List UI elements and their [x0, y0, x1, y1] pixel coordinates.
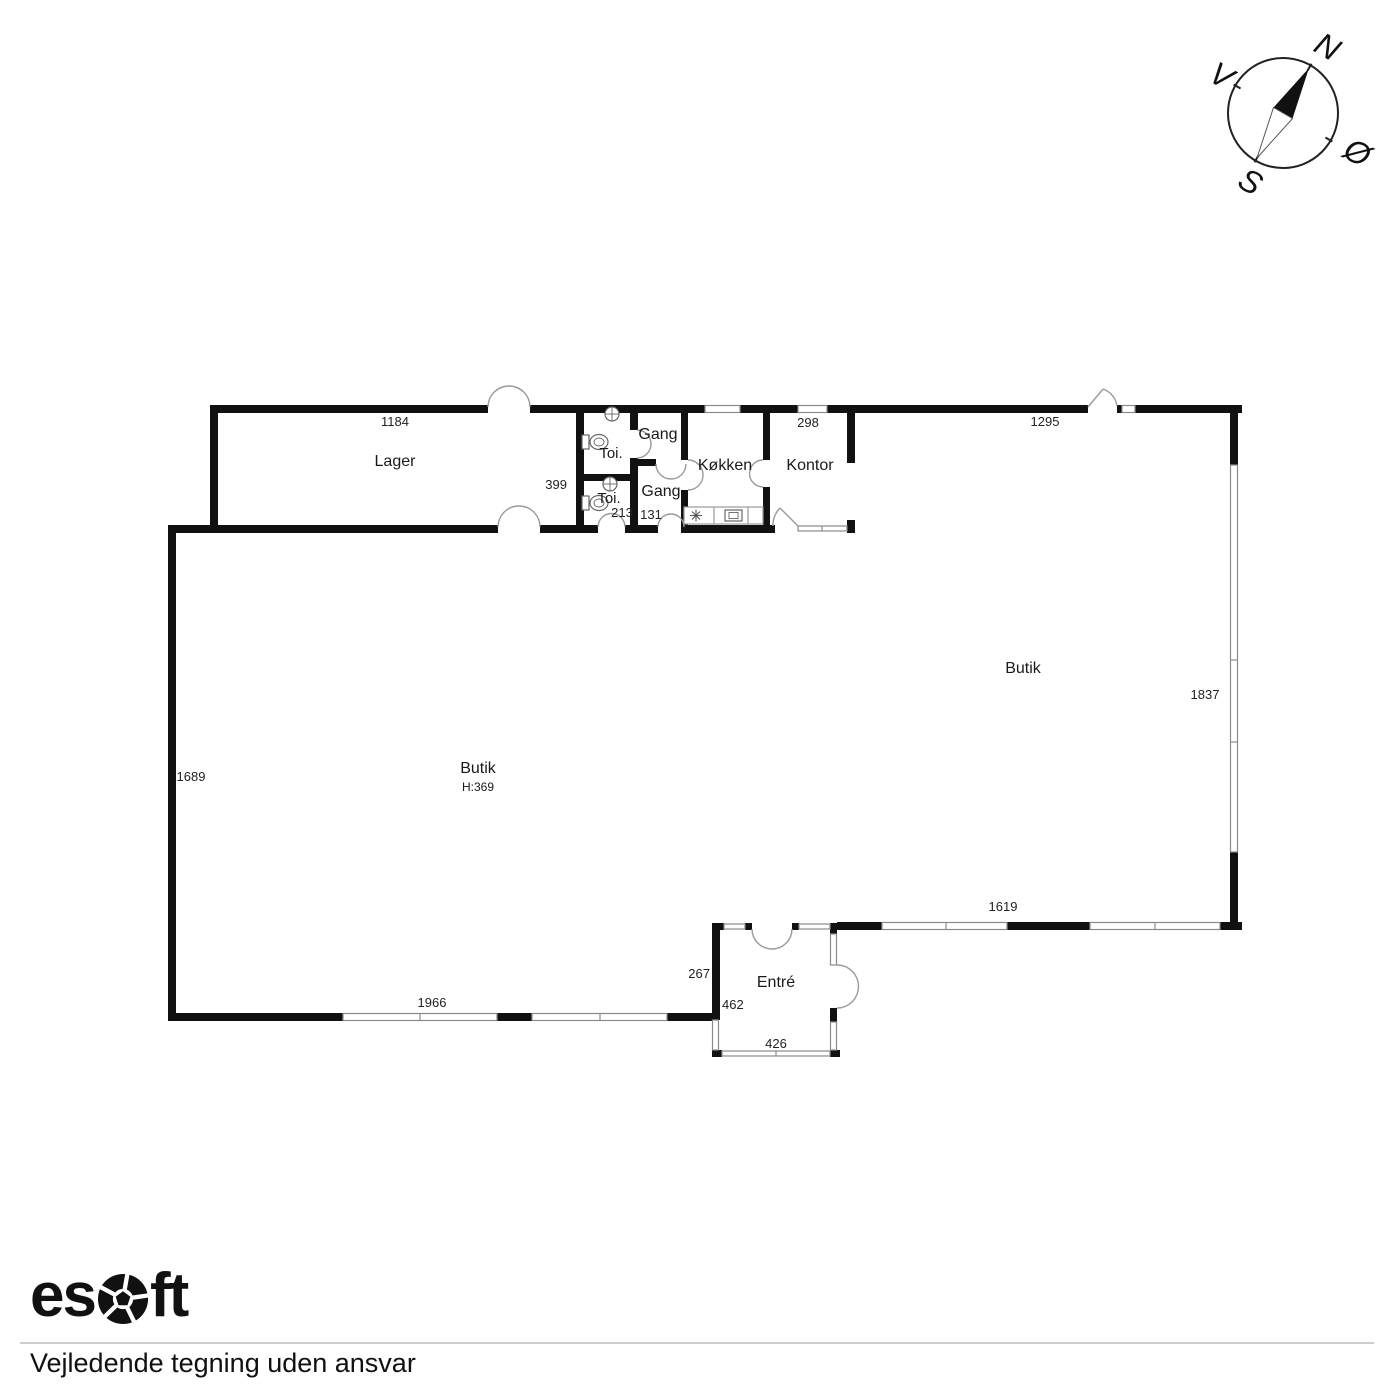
walls [168, 405, 1242, 1057]
door-arc [509, 386, 530, 407]
dim-butik-top: 1295 [1031, 414, 1060, 429]
room-label-entre: Entré [757, 974, 795, 991]
room-label-gang-upper: Gang [638, 426, 677, 443]
door-leaf [1088, 389, 1103, 407]
dim-entre-left-upper: 267 [688, 966, 710, 981]
aperture-icon [97, 1273, 149, 1325]
door-arc [750, 474, 764, 488]
room-label-toi-upper: Toi. [599, 445, 622, 462]
windows [343, 406, 1238, 1057]
window [724, 924, 745, 929]
dim-butik-bottom: 1966 [418, 995, 447, 1010]
compass-label-west: V [1203, 55, 1242, 98]
door-arc [637, 444, 651, 458]
dim-lager-side: 399 [545, 477, 567, 492]
esoft-logo: es ft [30, 1262, 1374, 1330]
dim-entre-bottom: 426 [765, 1036, 787, 1051]
door-arc [671, 464, 686, 479]
door-arc [598, 514, 612, 528]
compass-label-north: N [1308, 25, 1347, 68]
compass-rose: N Ø S V [1203, 25, 1379, 202]
door-arc [688, 475, 703, 490]
compass-label-east: Ø [1337, 130, 1379, 175]
room-label-kontor: Kontor [786, 457, 834, 474]
door-arc [519, 506, 540, 527]
door-arc [773, 508, 780, 526]
dim-entre-left-lower: 462 [722, 997, 744, 1012]
sink-icon [603, 477, 617, 491]
dim-butik-right-side: 1837 [1191, 687, 1220, 702]
door-arc [488, 386, 509, 407]
window [705, 406, 740, 413]
window [799, 924, 830, 929]
dim-toi: 213 [611, 505, 633, 520]
room-label-gang-lower: Gang [641, 483, 680, 500]
dim-butik-bottom-right: 1619 [989, 899, 1018, 914]
window [1231, 465, 1238, 852]
room-label-butik-main: Butik [460, 760, 497, 777]
room-label-lager: Lager [375, 453, 417, 470]
door-arc [1103, 389, 1117, 406]
door-arc [772, 929, 792, 949]
dim-kontor-top: 298 [797, 415, 819, 430]
footer-divider [20, 1342, 1374, 1344]
door-arc [656, 464, 671, 479]
disclaimer-text: Vejledende tegning uden ansvar [30, 1348, 416, 1379]
kitchen-sink-icon [725, 510, 742, 521]
window [1122, 406, 1135, 413]
room-height-label: H:369 [462, 780, 494, 794]
window [831, 934, 837, 965]
logo-text-left: es [30, 1265, 95, 1327]
window [831, 1022, 837, 1050]
room-label-kokken: Køkken [698, 457, 752, 474]
door-leaf [780, 508, 798, 526]
compass-label-south: S [1232, 161, 1268, 203]
sink-icon [605, 407, 619, 421]
door-arc [837, 965, 859, 987]
door-arc [752, 929, 772, 949]
window [882, 923, 1007, 930]
floorplan-drawing: Lager Toi. Toi. Gang Gang Køkken Kontor … [0, 0, 1400, 1400]
compass-needle-south [1257, 108, 1293, 159]
dim-butik-left-side: 1689 [177, 769, 206, 784]
footer: es ft Vejledende tegning uden ansvar [30, 1262, 1374, 1330]
window [798, 406, 827, 413]
floorplan-page: Lager Toi. Toi. Gang Gang Køkken Kontor … [0, 0, 1400, 1400]
door-arc [498, 506, 519, 527]
dim-gang: 131 [640, 507, 662, 522]
logo-text-right: ft [150, 1265, 187, 1327]
window [713, 1020, 719, 1050]
room-label-butik-right: Butik [1005, 660, 1042, 677]
door-arc [837, 987, 859, 1009]
dim-lager-top: 1184 [381, 414, 409, 429]
